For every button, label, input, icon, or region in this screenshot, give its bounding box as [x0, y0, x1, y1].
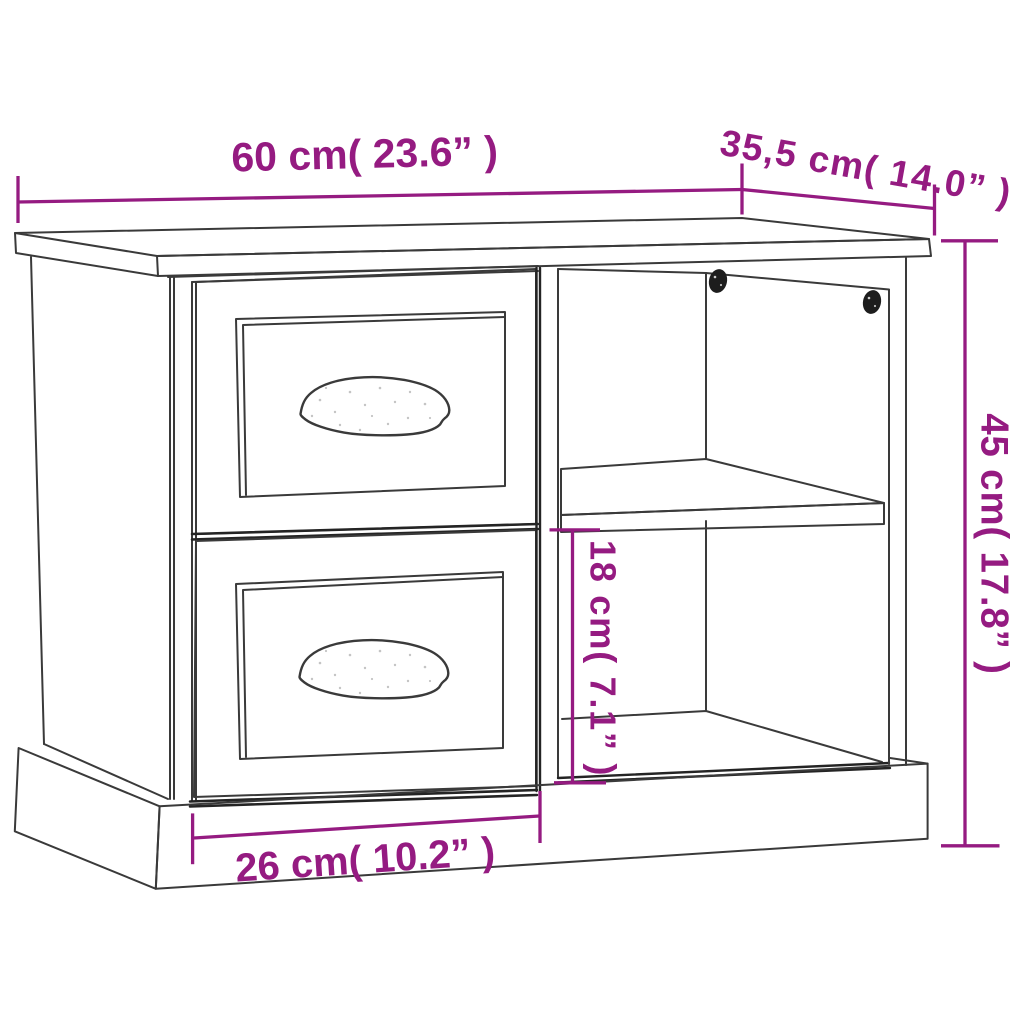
svg-text:45 cm( 17.8” ): 45 cm( 17.8” ) [973, 413, 1016, 675]
svg-text:60 cm( 23.6” ): 60 cm( 23.6” ) [231, 128, 499, 181]
svg-text:18 cm( 7.1” ): 18 cm( 7.1” ) [583, 540, 624, 777]
